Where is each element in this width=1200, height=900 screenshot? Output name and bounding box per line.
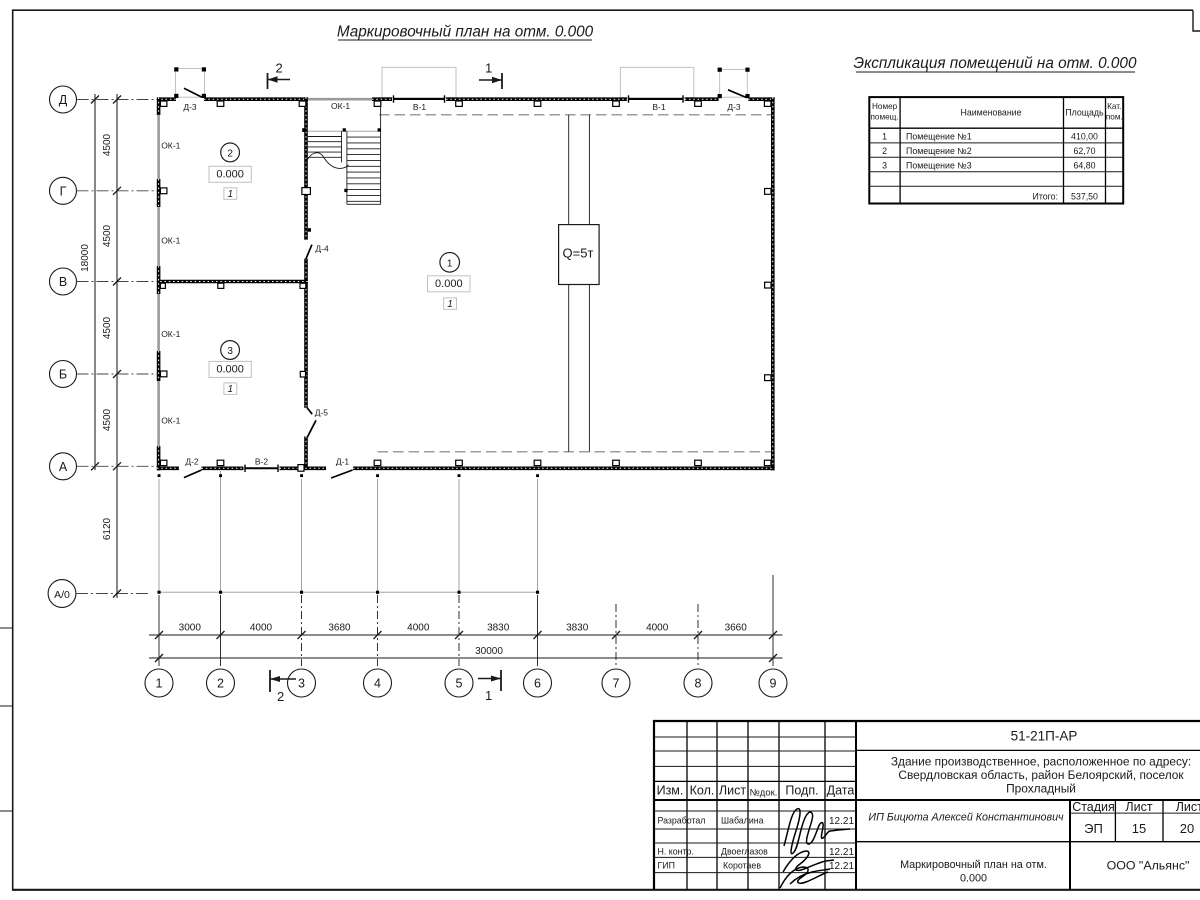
svg-text:3: 3 (882, 161, 887, 171)
svg-text:Изм.: Изм. (657, 784, 684, 798)
svg-text:6120: 6120 (102, 517, 113, 540)
svg-text:6: 6 (534, 677, 541, 691)
svg-text:0.000: 0.000 (435, 278, 463, 290)
svg-text:Д-4: Д-4 (315, 244, 329, 254)
svg-text:Q=5т: Q=5т (563, 246, 594, 261)
svg-text:7: 7 (613, 677, 620, 691)
svg-text:12.21: 12.21 (829, 816, 854, 827)
svg-text:ООО "Альянс": ООО "Альянс" (1107, 859, 1190, 873)
svg-text:Кол.: Кол. (690, 784, 715, 798)
svg-text:0.000: 0.000 (216, 364, 244, 376)
svg-text:Площадь: Площадь (1065, 108, 1104, 118)
svg-text:1: 1 (447, 258, 453, 269)
svg-text:Листов: Листов (1176, 800, 1200, 814)
svg-text:Стадия: Стадия (1072, 800, 1115, 814)
svg-text:3000: 3000 (179, 623, 202, 634)
svg-text:Кат.: Кат. (1107, 102, 1121, 111)
svg-text:2: 2 (277, 689, 284, 704)
svg-text:1: 1 (228, 384, 234, 395)
svg-text:Н. контр.: Н. контр. (658, 847, 694, 857)
svg-text:51-21П-АР: 51-21П-АР (1011, 729, 1078, 744)
svg-text:Помещение №3: Помещение №3 (906, 161, 972, 171)
svg-text:12.21: 12.21 (829, 847, 854, 858)
svg-text:ОК-1: ОК-1 (161, 236, 180, 246)
svg-text:В: В (59, 275, 67, 289)
svg-text:ОК-1: ОК-1 (161, 329, 180, 339)
svg-text:ЭП: ЭП (1084, 821, 1103, 836)
svg-text:Д: Д (59, 93, 68, 107)
svg-text:3660: 3660 (725, 623, 748, 634)
svg-text:Д-3: Д-3 (183, 102, 197, 112)
svg-text:Д-1: Д-1 (336, 456, 350, 466)
svg-text:Прохладный: Прохладный (1006, 782, 1076, 796)
svg-text:18000: 18000 (80, 244, 91, 272)
svg-text:Г: Г (60, 184, 67, 198)
svg-text:410,00: 410,00 (1071, 132, 1098, 142)
svg-text:Экспликация помещений на отм.: Экспликация помещений на отм. 0.000 (854, 55, 1137, 72)
svg-text:пом.: пом. (1106, 113, 1123, 122)
svg-text:Номер: Номер (872, 102, 898, 111)
svg-text:Д-5: Д-5 (315, 408, 329, 418)
svg-text:1: 1 (882, 132, 887, 142)
svg-text:64,80: 64,80 (1073, 161, 1095, 171)
svg-text:8: 8 (695, 677, 702, 691)
svg-text:1: 1 (447, 299, 453, 310)
svg-text:Маркировочный план на отм.: Маркировочный план на отм. (900, 859, 1047, 871)
svg-text:Подп.: Подп. (785, 784, 818, 798)
svg-text:4000: 4000 (407, 623, 430, 634)
svg-text:Д-2: Д-2 (185, 456, 199, 466)
svg-text:537,50: 537,50 (1071, 192, 1098, 202)
svg-text:4500: 4500 (102, 316, 113, 339)
svg-text:помещ.: помещ. (871, 113, 899, 122)
svg-text:1: 1 (485, 688, 492, 703)
svg-text:Здание производственное, распо: Здание производственное, расположенное п… (891, 755, 1191, 769)
svg-text:0.000: 0.000 (960, 873, 987, 885)
svg-text:Лист: Лист (1125, 800, 1152, 814)
svg-text:1: 1 (156, 677, 163, 691)
svg-text:ГИП: ГИП (658, 861, 675, 871)
svg-text:Свердловская область, район Бе: Свердловская область, район Белоярский, … (898, 768, 1184, 782)
svg-text:Лист: Лист (719, 784, 746, 798)
svg-text:30000: 30000 (475, 646, 503, 657)
svg-text:Маркировочный план на отм. 0.0: Маркировочный план на отм. 0.000 (337, 24, 594, 41)
svg-text:2: 2 (276, 61, 283, 76)
svg-text:2: 2 (882, 146, 887, 156)
svg-text:2: 2 (227, 148, 233, 159)
svg-text:3: 3 (298, 677, 305, 691)
svg-text:Д-3: Д-3 (727, 102, 741, 112)
svg-text:4500: 4500 (102, 408, 113, 431)
svg-text:1: 1 (485, 61, 492, 76)
svg-text:Б: Б (59, 368, 67, 382)
svg-text:4500: 4500 (102, 224, 113, 247)
svg-text:Коротаев: Коротаев (723, 861, 761, 871)
svg-text:Разработал: Разработал (658, 816, 706, 826)
svg-text:ИП Бицюта Алексей Константинов: ИП Бицюта Алексей Константинович (868, 812, 1064, 824)
svg-text:А: А (59, 460, 68, 474)
svg-text:3830: 3830 (487, 623, 510, 634)
svg-text:ОК-1: ОК-1 (161, 140, 180, 150)
svg-text:В-1: В-1 (413, 102, 427, 112)
svg-text:3830: 3830 (566, 623, 589, 634)
svg-text:Дата: Дата (827, 784, 855, 798)
svg-text:15: 15 (1132, 821, 1146, 836)
svg-text:3: 3 (227, 346, 233, 357)
svg-text:Двоеглазов: Двоеглазов (721, 847, 768, 857)
svg-text:4000: 4000 (646, 623, 669, 634)
svg-text:1: 1 (228, 189, 234, 200)
svg-text:4: 4 (374, 677, 381, 691)
svg-text:9: 9 (770, 677, 777, 691)
svg-text:4000: 4000 (250, 623, 273, 634)
svg-text:20: 20 (1180, 821, 1194, 836)
svg-text:В-2: В-2 (255, 456, 269, 466)
svg-text:В-1: В-1 (652, 102, 666, 112)
svg-text:4500: 4500 (102, 133, 113, 156)
svg-text:12.21: 12.21 (829, 861, 854, 872)
svg-text:Шабалина: Шабалина (721, 816, 764, 826)
svg-text:Итого:: Итого: (1033, 192, 1059, 202)
svg-text:0.000: 0.000 (216, 169, 244, 181)
svg-text:Наименование: Наименование (961, 108, 1022, 118)
svg-text:5: 5 (456, 677, 463, 691)
svg-text:ОК-1: ОК-1 (331, 101, 350, 111)
svg-text:3680: 3680 (328, 623, 351, 634)
svg-text:№док.: №док. (750, 788, 778, 799)
svg-text:ОК-1: ОК-1 (161, 415, 180, 425)
svg-text:62,70: 62,70 (1073, 146, 1095, 156)
svg-text:2: 2 (217, 677, 224, 691)
svg-text:А/0: А/0 (54, 589, 70, 601)
svg-text:Помещение №1: Помещение №1 (906, 132, 972, 142)
svg-text:Помещение №2: Помещение №2 (906, 146, 972, 156)
